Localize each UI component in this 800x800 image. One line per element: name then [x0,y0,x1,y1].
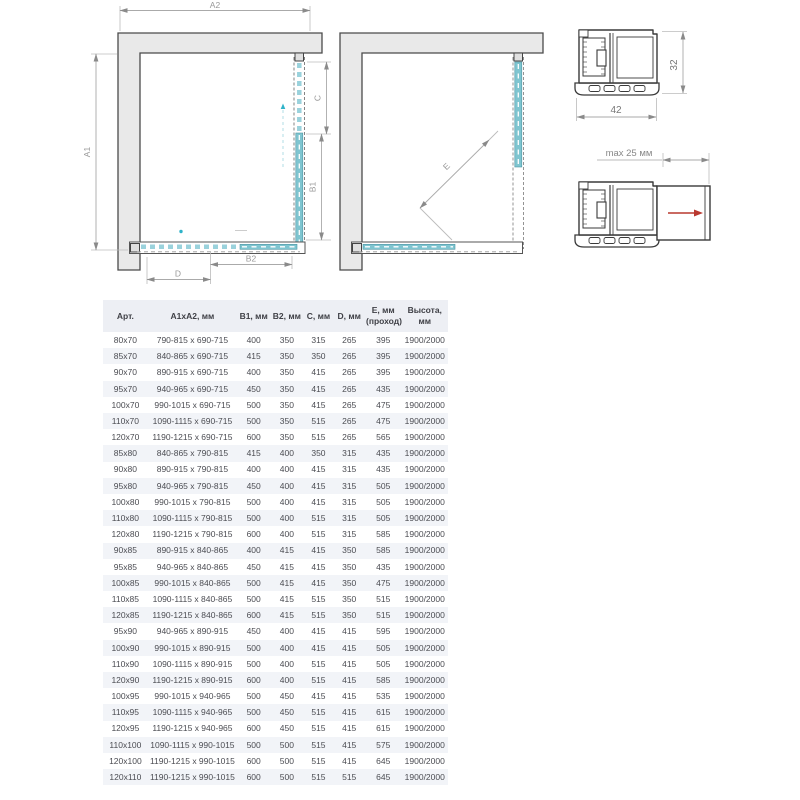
table-cell: 1900/2000 [402,397,449,413]
table-cell: 100x80 [103,494,148,510]
table-row: 120x801190-1215 x 790-815600400515315585… [103,526,448,542]
table-row: 110x801090-1115 x 790-815500400515315505… [103,510,448,526]
table-cell: 400 [270,445,303,461]
table-cell: 1900/2000 [402,445,449,461]
table-cell: 515 [303,769,333,785]
table-row: 120x901190-1215 x 890-915600400515415585… [103,672,448,688]
table-cell: 840-865 x 690-715 [148,348,237,364]
table-cell: 415 [237,445,270,461]
table-cell: 1090-1115 x 690-715 [148,413,237,429]
table-cell: 475 [365,397,402,413]
table-cell: 790-815 x 690-715 [148,332,237,348]
table-row: 95x85940-965 x 840-865450415415350435190… [103,559,448,575]
table-header: Арт.A1xA2, ммB1, ммB2, ммC, ммD, ммE, мм… [103,300,448,332]
table-row: 110x901090-1115 x 890-915500400515415505… [103,656,448,672]
table-cell: 600 [237,607,270,623]
table-cell: 1900/2000 [402,737,449,753]
table-cell: 990-1015 x 840-865 [148,575,237,591]
table-cell: 585 [365,672,402,688]
dim-label-e: E [441,161,452,172]
table-cell: 1900/2000 [402,494,449,510]
table-cell: 415 [270,559,303,575]
table-cell: 85x70 [103,348,148,364]
table-row: 110x951090-1115 x 940-965500450515415615… [103,704,448,720]
table-cell: 350 [333,575,365,591]
table-cell: 415 [303,640,333,656]
column-header: Арт. [103,300,148,332]
table-cell: 100x85 [103,575,148,591]
table-cell: 500 [237,494,270,510]
table-cell: 1900/2000 [402,721,449,737]
table-cell: 1090-1115 x 890-915 [148,656,237,672]
table-cell: 990-1015 x 790-815 [148,494,237,510]
table-cell: 400 [270,510,303,526]
table-cell: 95x80 [103,478,148,494]
table-cell: 500 [237,737,270,753]
table-cell: 500 [237,688,270,704]
table-cell: 400 [270,656,303,672]
table-cell: 400 [270,478,303,494]
table-cell: 395 [365,348,402,364]
table-cell: 450 [270,704,303,720]
table-cell: 505 [365,510,402,526]
dim-label-b1: B1 [308,182,318,193]
handle-marker-icon [179,230,182,233]
table-cell: 940-965 x 790-815 [148,478,237,494]
table-cell: 1900/2000 [402,332,449,348]
table-cell: 565 [365,429,402,445]
table-cell: 1900/2000 [402,591,449,607]
table-cell: 1900/2000 [402,656,449,672]
table-row: 110x1001090-1115 x 990-10155005005154155… [103,737,448,753]
table-row: 110x851090-1115 x 840-865500415515350515… [103,591,448,607]
table-cell: 400 [270,462,303,478]
table-row: 85x80840-865 x 790-815415400350315435190… [103,445,448,461]
table-cell: 415 [333,737,365,753]
table-cell: 110x90 [103,656,148,672]
table-cell: 1900/2000 [402,526,449,542]
table-cell: 415 [270,575,303,591]
table-cell: 415 [333,623,365,639]
table-cell: 120x110 [103,769,148,785]
table-cell: 400 [237,332,270,348]
table-cell: 1900/2000 [402,348,449,364]
table-cell: 400 [237,462,270,478]
table-cell: 90x80 [103,462,148,478]
table-cell: 90x85 [103,543,148,559]
table-cell: 615 [365,721,402,737]
table-cell: 1090-1115 x 790-815 [148,510,237,526]
table-cell: 515 [333,769,365,785]
table-cell: 435 [365,559,402,575]
table-cell: 265 [333,348,365,364]
table-cell: 515 [303,429,333,445]
table-cell: 415 [303,623,333,639]
table-cell: 415 [333,704,365,720]
table-cell: 415 [270,607,303,623]
table-cell: 120x85 [103,607,148,623]
dim-label-a2: A2 [210,0,221,10]
table-cell: 500 [270,753,303,769]
table-cell: 415 [333,753,365,769]
table-cell: 400 [270,494,303,510]
table-cell: 585 [365,526,402,542]
table-row: 120x1101190-1215 x 990-10156005005155156… [103,769,448,785]
table-cell: 95x90 [103,623,148,639]
table-cell: 315 [333,510,365,526]
table-cell: 415 [333,656,365,672]
table-cell: 415 [333,721,365,737]
wall-bracket [131,244,140,253]
table-cell: 350 [333,591,365,607]
table-cell: 110x95 [103,704,148,720]
table-cell: 350 [270,397,303,413]
table-cell: 1900/2000 [402,704,449,720]
table-cell: 515 [303,510,333,526]
column-header: E, мм (проход) [365,300,402,332]
table-cell: 315 [303,332,333,348]
table-cell: 450 [237,623,270,639]
table-cell: 90x70 [103,364,148,380]
table-cell: 120x95 [103,721,148,737]
table-cell: 500 [237,704,270,720]
table-cell: 415 [333,672,365,688]
table-cell: 400 [237,543,270,559]
table-cell: 265 [333,429,365,445]
column-header: B1, мм [237,300,270,332]
table-cell: 500 [237,640,270,656]
glass-panel-bottom [240,244,297,249]
table-cell: 600 [237,721,270,737]
dim-label-d: D [175,269,181,279]
table-cell: 890-915 x 790-815 [148,462,237,478]
column-header: A1xA2, мм [148,300,237,332]
table-cell: 500 [237,656,270,672]
table-cell: 120x100 [103,753,148,769]
table-cell: 450 [237,559,270,575]
table-cell: 600 [237,753,270,769]
table-cell: 415 [303,364,333,380]
table-cell: 1190-1215 x 890-915 [148,672,237,688]
table-cell: 1190-1215 x 840-865 [148,607,237,623]
table-cell: 515 [303,737,333,753]
table-cell: 120x70 [103,429,148,445]
table-cell: 600 [237,769,270,785]
table-cell: 400 [237,364,270,380]
table-cell: 400 [270,526,303,542]
table-cell: 120x90 [103,672,148,688]
table-cell: 940-965 x 840-865 [148,559,237,575]
diagram-corner-closed: A2 A1 C B1 B2 D [82,0,331,284]
table-cell: 315 [333,445,365,461]
wall-bracket [295,53,304,61]
table-cell: 450 [237,478,270,494]
table-cell: 1900/2000 [402,413,449,429]
table-cell: 450 [237,381,270,397]
table-cell: 515 [303,753,333,769]
table-row: 85x70840-865 x 690-715415350350265395190… [103,348,448,364]
table-cell: 1090-1115 x 990-1015 [148,737,237,753]
table-row: 120x1001190-1215 x 990-10156005005154156… [103,753,448,769]
table-cell: 415 [303,575,333,591]
table-cell: 400 [270,640,303,656]
table-cell: 505 [365,640,402,656]
table-cell: 500 [270,769,303,785]
table-cell: 265 [333,332,365,348]
table-cell: 85x80 [103,445,148,461]
table-cell: 415 [270,543,303,559]
table-cell: 350 [270,332,303,348]
table-cell: 1190-1215 x 990-1015 [148,753,237,769]
table-cell: 515 [303,413,333,429]
table-cell: 415 [333,640,365,656]
table-cell: 1900/2000 [402,769,449,785]
table-row: 120x701190-1215 x 690-715600350515265565… [103,429,448,445]
table-cell: 1900/2000 [402,672,449,688]
table-cell: 475 [365,413,402,429]
table-cell: 1090-1115 x 840-865 [148,591,237,607]
table-cell: 110x70 [103,413,148,429]
table-cell: 415 [303,688,333,704]
table-cell: 595 [365,623,402,639]
table-cell: 435 [365,381,402,397]
table-cell: 350 [333,559,365,575]
table-cell: 450 [270,688,303,704]
table-cell: 350 [270,381,303,397]
table-cell: 110x85 [103,591,148,607]
table-cell: 1900/2000 [402,381,449,397]
table-cell: 350 [270,413,303,429]
table-cell: 110x80 [103,510,148,526]
table-row: 90x80890-915 x 790-815400400415315435190… [103,462,448,478]
table-row: 110x701090-1115 x 690-715500350515265475… [103,413,448,429]
table-cell: 265 [333,413,365,429]
table-cell: 110x100 [103,737,148,753]
table-cell: 450 [270,721,303,737]
table-cell: 350 [270,429,303,445]
dim-label-b2: B2 [246,254,257,264]
table-cell: 615 [365,704,402,720]
table-cell: 350 [333,607,365,623]
table-cell: 95x70 [103,381,148,397]
profile-section-drawing: 32 42 [575,30,687,121]
table-row: 120x951190-1215 x 940-965600450515415615… [103,721,448,737]
table-cell: 585 [365,543,402,559]
table-cell: 415 [303,494,333,510]
column-header: C, мм [303,300,333,332]
table-cell: 400 [270,672,303,688]
dim-label-profile-height: 32 [669,59,680,71]
table-cell: 505 [365,494,402,510]
table-cell: 100x90 [103,640,148,656]
wall-shape [118,33,322,270]
table-cell: 395 [365,332,402,348]
table-cell: 265 [333,364,365,380]
table-cell: 515 [303,656,333,672]
table-cell: 1900/2000 [402,429,449,445]
table-cell: 415 [237,348,270,364]
table-cell: 100x70 [103,397,148,413]
table-cell: 315 [333,494,365,510]
table-row: 100x85990-1015 x 840-8655004154153504751… [103,575,448,591]
table-cell: 1190-1215 x 690-715 [148,429,237,445]
table-cell: 500 [237,397,270,413]
table-row: 100x80990-1015 x 790-8155004004153155051… [103,494,448,510]
column-header: B2, мм [270,300,303,332]
dim-label-a1: A1 [82,147,92,158]
table-cell: 505 [365,656,402,672]
handle-marker-icon [281,104,286,110]
table-cell: 515 [303,591,333,607]
table-cell: 940-965 x 690-715 [148,381,237,397]
table-row: 100x70990-1015 x 690-7155003504152654751… [103,397,448,413]
table-cell: 645 [365,769,402,785]
table-cell: 500 [237,575,270,591]
table-cell: 350 [270,348,303,364]
table-cell: 535 [365,688,402,704]
table-cell: 435 [365,445,402,461]
column-header: Высота, мм [402,300,449,332]
table-cell: 265 [333,397,365,413]
table-cell: 990-1015 x 940-965 [148,688,237,704]
table-cell: 1090-1115 x 940-965 [148,704,237,720]
table-row: 100x90990-1015 x 890-9155004004154155051… [103,640,448,656]
table-cell: 575 [365,737,402,753]
table-row: 100x95990-1015 x 940-9655004504154155351… [103,688,448,704]
table-cell: 395 [365,364,402,380]
spec-sheet: A2 A1 C B1 B2 D E 32 42 [0,0,800,800]
table-cell: 1900/2000 [402,640,449,656]
table-cell: 1190-1215 x 990-1015 [148,769,237,785]
table-cell: 500 [237,510,270,526]
table-cell: 1190-1215 x 940-965 [148,721,237,737]
table-cell: 600 [237,672,270,688]
column-header: D, мм [333,300,365,332]
table-cell: 1900/2000 [402,575,449,591]
table-cell: 415 [303,478,333,494]
table-cell: 515 [303,721,333,737]
table-row: 80x70790-815 x 690-715400350315265395190… [103,332,448,348]
table-cell: 415 [303,397,333,413]
table-cell: 890-915 x 840-865 [148,543,237,559]
table-cell: 80x70 [103,332,148,348]
glass-panel-right [296,133,303,244]
table-cell: 515 [365,607,402,623]
table-cell: 350 [303,445,333,461]
table-cell: 100x95 [103,688,148,704]
table-cell: 1900/2000 [402,688,449,704]
dim-label-profile-width: 42 [610,105,622,116]
table-cell: 600 [237,429,270,445]
table-cell: 415 [303,381,333,397]
table-cell: 415 [333,688,365,704]
wall-bracket [514,53,523,61]
table-cell: 400 [270,623,303,639]
table-cell: 500 [237,413,270,429]
table-cell: 350 [303,348,333,364]
dim-label-c: C [313,95,323,101]
table-cell: 940-965 x 890-915 [148,623,237,639]
technical-drawings: A2 A1 C B1 B2 D E 32 42 [0,0,800,298]
diagram-corner-open: E [340,33,543,270]
table-row: 120x851190-1215 x 840-865600415515350515… [103,607,448,623]
size-spec-table: Арт.A1xA2, ммB1, ммB2, ммC, ммD, ммE, мм… [103,300,448,785]
table-cell: 1900/2000 [402,510,449,526]
table-cell: 1900/2000 [402,462,449,478]
table-cell: 350 [333,543,365,559]
table-cell: 315 [333,462,365,478]
table-cell: 315 [333,526,365,542]
table-cell: 435 [365,462,402,478]
table-cell: 500 [237,591,270,607]
table-cell: 990-1015 x 890-915 [148,640,237,656]
table-cell: 505 [365,478,402,494]
table-cell: 1900/2000 [402,364,449,380]
table-cell: 1900/2000 [402,607,449,623]
table-cell: 415 [270,591,303,607]
table-cell: 600 [237,526,270,542]
table-cell: 645 [365,753,402,769]
table-cell: 840-865 x 790-815 [148,445,237,461]
table-cell: 315 [333,478,365,494]
table-cell: 1900/2000 [402,753,449,769]
table-cell: 265 [333,381,365,397]
table-cell: 1900/2000 [402,478,449,494]
table-cell: 515 [303,672,333,688]
table-row: 90x70890-915 x 690-715400350415265395190… [103,364,448,380]
table-row: 95x90940-965 x 890-915450400415415595190… [103,623,448,639]
table-cell: 500 [270,737,303,753]
table-row: 95x80940-965 x 790-815450400415315505190… [103,478,448,494]
table-cell: 415 [303,559,333,575]
table-cell: 475 [365,575,402,591]
dim-label-max-adjust: max 25 мм [606,148,653,159]
table-row: 95x70940-965 x 690-715450350415265435190… [103,381,448,397]
table-cell: 515 [303,704,333,720]
table-cell: 515 [365,591,402,607]
profile-adjustment-drawing: max 25 мм [575,148,710,247]
dim-line-e [420,140,489,208]
table-cell: 515 [303,526,333,542]
table-cell: 1190-1215 x 790-815 [148,526,237,542]
table-cell: 415 [303,543,333,559]
table-cell: 415 [303,462,333,478]
table-cell: 120x80 [103,526,148,542]
table-cell: 1900/2000 [402,543,449,559]
table-cell: 990-1015 x 690-715 [148,397,237,413]
table-cell: 890-915 x 690-715 [148,364,237,380]
table-row: 90x85890-915 x 840-865400415415350585190… [103,543,448,559]
wall-bracket [353,244,362,253]
table-cell: 350 [270,364,303,380]
table-cell: 95x85 [103,559,148,575]
table-cell: 515 [303,607,333,623]
table-cell: 1900/2000 [402,559,449,575]
table-cell: 1900/2000 [402,623,449,639]
